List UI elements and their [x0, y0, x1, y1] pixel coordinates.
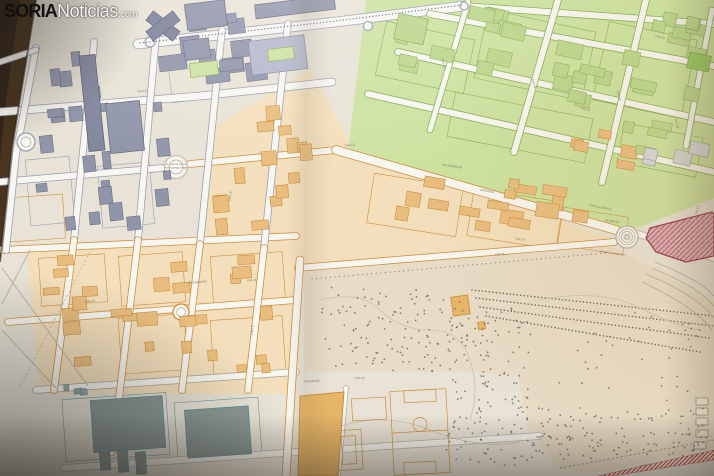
- tree-dot: [490, 405, 492, 407]
- tree-dot: [638, 341, 640, 343]
- tree-dot: [481, 432, 483, 434]
- tree-dot: [682, 415, 684, 417]
- tree-dot: [480, 354, 482, 356]
- tree-dot: [415, 320, 417, 322]
- tree-dot: [354, 347, 356, 349]
- tree-dot: [585, 361, 587, 363]
- tree-dot: [612, 344, 614, 346]
- tree-dot: [697, 444, 699, 446]
- tree-dot: [535, 450, 537, 452]
- tree-dot: [456, 359, 458, 361]
- tree-dot: [511, 432, 513, 434]
- tree-dot: [447, 435, 449, 437]
- tree-dot: [641, 358, 643, 360]
- tree-dot: [672, 452, 674, 454]
- tree-dot: [514, 464, 516, 466]
- tree-dot: [579, 407, 581, 409]
- building-footprint: [74, 356, 91, 366]
- tree-dot: [387, 344, 389, 346]
- street-label: CALLE: [355, 376, 365, 381]
- tree-dot: [487, 448, 489, 450]
- tree-dot: [593, 416, 595, 418]
- tree-dot: [600, 417, 602, 419]
- tree-dot: [653, 433, 655, 435]
- building-footprint: [163, 170, 171, 179]
- tree-dot: [418, 368, 420, 370]
- tree-dot: [616, 453, 618, 455]
- tree-dot: [520, 428, 522, 430]
- tree-dot: [391, 348, 393, 350]
- tree-dot: [705, 437, 707, 439]
- building-footprint: [98, 186, 113, 204]
- building-footprint: [145, 342, 154, 352]
- tree-dot: [630, 449, 632, 451]
- tree-dot: [364, 305, 366, 307]
- tree-dot: [649, 450, 651, 452]
- tree-dot: [434, 357, 436, 359]
- tree-dot: [650, 432, 652, 434]
- building-footprint: [451, 295, 470, 316]
- tree-dot: [648, 418, 650, 420]
- tree-dot: [338, 294, 340, 296]
- tree-dot: [338, 309, 340, 311]
- building-footprint: [173, 282, 191, 293]
- tree-dot: [691, 450, 693, 452]
- tree-dot: [426, 295, 428, 297]
- tree-dot: [449, 350, 451, 352]
- tree-dot: [596, 367, 598, 369]
- tree-dot: [559, 414, 561, 416]
- tree-dot: [682, 433, 684, 435]
- tree-dot: [668, 409, 670, 411]
- tree-dot: [611, 416, 613, 418]
- building-footprint: [696, 418, 708, 425]
- tree-dot: [666, 399, 668, 401]
- roundabout: [17, 133, 35, 151]
- tree-dot: [623, 436, 625, 438]
- tree-dot: [401, 346, 403, 348]
- tree-dot: [329, 348, 331, 350]
- tree-dot: [521, 322, 523, 324]
- building-footprint: [156, 138, 170, 157]
- tree-dot: [549, 418, 551, 420]
- tree-dot: [584, 435, 586, 437]
- tree-dot: [482, 375, 484, 377]
- tree-dot: [653, 443, 655, 445]
- tree-dot: [461, 337, 463, 339]
- tree-dot: [661, 415, 663, 417]
- tree-dot: [457, 398, 459, 400]
- tree-dot: [392, 370, 394, 372]
- tree-dot: [355, 362, 357, 364]
- tree-dot: [488, 355, 490, 357]
- tree-dot: [597, 445, 599, 447]
- building-footprint: [237, 364, 247, 372]
- tree-dot: [570, 425, 572, 427]
- tree-dot: [449, 321, 451, 323]
- tree-dot: [556, 438, 558, 440]
- tree-dot: [452, 379, 454, 381]
- tree-dot: [538, 407, 540, 409]
- tree-dot: [461, 341, 463, 343]
- tree-dot: [483, 359, 485, 361]
- building-footprint: [43, 287, 59, 295]
- tree-dot: [392, 314, 394, 316]
- solid-orange-block: [298, 392, 344, 476]
- tree-dot: [402, 361, 404, 363]
- building-footprint: [552, 62, 570, 78]
- tree-dot: [449, 368, 451, 370]
- tree-dot: [449, 441, 451, 443]
- tree-dot: [629, 337, 631, 339]
- tree-dot: [587, 341, 589, 343]
- tree-dot: [335, 365, 337, 367]
- tree-dot: [566, 437, 568, 439]
- tree-dot: [485, 453, 487, 455]
- tree-dot: [478, 461, 480, 463]
- tree-dot: [651, 316, 653, 318]
- tree-dot: [514, 396, 516, 398]
- tree-dot: [634, 312, 636, 314]
- building-footprint: [111, 308, 132, 316]
- tree-dot: [494, 461, 496, 463]
- tree-dot: [558, 443, 560, 445]
- tree-dot: [465, 441, 467, 443]
- building-footprint: [573, 140, 588, 152]
- tree-dot: [680, 422, 682, 424]
- tree-dot: [400, 352, 402, 354]
- tree-dot: [431, 362, 433, 364]
- building-footprint: [185, 0, 228, 30]
- tree-dot: [518, 407, 520, 409]
- tree-dot: [451, 329, 453, 331]
- tree-dot: [627, 411, 629, 413]
- tree-dot: [437, 343, 439, 345]
- tree-dot: [643, 449, 645, 451]
- building-footprint: [153, 102, 162, 112]
- building-footprint: [251, 220, 268, 231]
- tree-dot: [595, 415, 597, 417]
- tree-dot: [577, 350, 579, 352]
- tree-dot: [668, 432, 670, 434]
- tree-dot: [357, 297, 359, 299]
- tree-dot: [416, 296, 418, 298]
- building-footprint: [153, 277, 169, 292]
- tree-dot: [705, 457, 707, 459]
- tree-dot: [378, 303, 380, 305]
- tree-dot: [684, 447, 686, 449]
- tree-dot: [669, 330, 671, 332]
- tree-dot: [501, 449, 503, 451]
- tree-dot: [651, 417, 653, 419]
- tree-dot: [462, 310, 464, 312]
- building-footprint: [109, 202, 124, 221]
- building-footprint: [183, 38, 211, 61]
- tree-dot: [676, 386, 678, 388]
- tree-dot: [450, 317, 452, 319]
- tree-dot: [378, 301, 380, 303]
- tree-dot: [331, 287, 333, 289]
- tree-dot: [698, 431, 700, 433]
- tree-dot: [378, 317, 380, 319]
- tree-dot: [518, 400, 520, 402]
- tree-dot: [526, 321, 528, 323]
- building-footprint: [89, 212, 101, 225]
- tree-dot: [330, 313, 332, 315]
- map-photo: VALLADOLIDAVENIDACALLECALLECALLECALLECAL…: [0, 0, 714, 476]
- tree-dot: [516, 382, 518, 384]
- tree-dot: [676, 376, 678, 378]
- tree-dot: [656, 444, 658, 446]
- tree-dot: [456, 448, 458, 450]
- tree-dot: [634, 418, 636, 420]
- tree-dot: [557, 425, 559, 427]
- tree-dot: [453, 338, 455, 340]
- tree-dot: [426, 335, 428, 337]
- tree-dot: [346, 310, 348, 312]
- building-footprint: [395, 206, 410, 221]
- street-label: PALACIOS: [304, 379, 320, 384]
- tree-dot: [530, 334, 532, 336]
- tree-dot: [541, 422, 543, 424]
- building-footprint: [82, 286, 98, 297]
- tree-dot: [458, 428, 460, 430]
- tree-dot: [615, 433, 617, 435]
- tree-dot: [673, 446, 675, 448]
- tree-dot: [480, 375, 482, 377]
- tree-dot: [497, 434, 499, 436]
- building-footprint: [36, 183, 48, 192]
- tree-dot: [459, 301, 461, 303]
- tree-dot: [439, 365, 441, 367]
- building-footprint: [300, 144, 313, 161]
- tree-dot: [499, 375, 501, 377]
- tree-dot: [490, 458, 492, 460]
- tree-dot: [626, 442, 628, 444]
- tree-dot: [511, 309, 513, 311]
- tree-dot: [543, 433, 545, 435]
- building-footprint: [478, 322, 486, 330]
- tree-dot: [486, 355, 488, 357]
- tree-dot: [521, 455, 523, 457]
- building-footprint: [685, 16, 700, 31]
- tree-dot: [668, 357, 670, 359]
- tree-dot: [647, 443, 649, 445]
- building-footprint: [126, 216, 141, 231]
- tree-dot: [518, 375, 520, 377]
- tree-dot: [690, 328, 692, 330]
- tree-dot: [390, 339, 392, 341]
- tree-dot: [675, 432, 677, 434]
- tree-dot: [476, 412, 478, 414]
- tree-dot: [583, 455, 585, 457]
- tree-dot: [702, 453, 704, 455]
- tree-dot: [472, 432, 474, 434]
- tree-dot: [459, 416, 461, 418]
- tree-dot: [565, 425, 567, 427]
- tree-dot: [700, 436, 702, 438]
- tree-dot: [482, 383, 484, 385]
- tree-dot: [532, 445, 534, 447]
- tree-dot: [567, 454, 569, 456]
- tree-dot: [461, 325, 463, 327]
- tree-dot: [661, 377, 663, 379]
- tree-dot: [367, 342, 369, 344]
- tree-dot: [498, 419, 500, 421]
- tree-dot: [591, 439, 593, 441]
- tree-dot: [407, 321, 409, 323]
- tree-dot: [389, 321, 391, 323]
- tree-dot: [539, 450, 541, 452]
- tree-dot: [673, 442, 675, 444]
- tree-dot: [502, 428, 504, 430]
- tree-dot: [522, 411, 524, 413]
- tree-dot: [460, 446, 462, 448]
- tree-dot: [454, 361, 456, 363]
- building-footprint: [696, 408, 708, 415]
- tree-dot: [459, 323, 461, 325]
- tree-dot: [569, 437, 571, 439]
- tree-dot: [505, 399, 507, 401]
- tree-dot: [466, 359, 468, 361]
- tree-dot: [487, 351, 489, 353]
- street-label: GLORIETA DE LA: [166, 163, 187, 166]
- tree-dot: [447, 349, 449, 351]
- tree-dot: [411, 298, 413, 300]
- tree-dot: [356, 346, 358, 348]
- tree-dot: [569, 439, 571, 441]
- tree-dot: [586, 432, 588, 434]
- tree-dot: [429, 299, 431, 301]
- building-footprint: [266, 105, 281, 120]
- tree-dot: [579, 420, 581, 422]
- tree-dot: [665, 413, 667, 415]
- tree-dot: [513, 382, 515, 384]
- tree-dot: [702, 425, 704, 427]
- tree-dot: [456, 326, 458, 328]
- tree-dot: [384, 328, 386, 330]
- tree-dot: [381, 362, 383, 364]
- tree-dot: [376, 352, 378, 354]
- street-label: CALLE: [247, 278, 257, 283]
- tree-dot: [465, 345, 467, 347]
- building-footprint: [262, 363, 271, 373]
- tree-dot: [686, 433, 688, 435]
- tree-dot: [321, 308, 323, 310]
- building-footprint: [64, 384, 69, 390]
- tree-dot: [514, 424, 516, 426]
- tree-dot: [520, 406, 522, 408]
- tree-dot: [350, 343, 352, 345]
- tree-dot: [374, 357, 376, 359]
- tree-dot: [431, 370, 433, 372]
- tree-dot: [466, 417, 468, 419]
- tree-dot: [483, 371, 485, 373]
- building-footprint: [643, 147, 658, 161]
- tree-dot: [572, 437, 574, 439]
- tree-dot: [537, 436, 539, 438]
- tree-dot: [495, 330, 497, 332]
- building-footprint: [207, 350, 217, 361]
- building-footprint: [288, 172, 300, 183]
- tree-dot: [469, 459, 471, 461]
- tree-dot: [589, 445, 591, 447]
- tree-dot: [564, 424, 566, 426]
- tree-dot: [429, 342, 431, 344]
- tree-dot: [492, 389, 494, 391]
- tree-dot: [697, 441, 699, 443]
- tree-dot: [349, 306, 351, 308]
- tree-dot: [608, 387, 610, 389]
- tree-dot: [526, 406, 528, 408]
- tree-dot: [396, 351, 398, 353]
- building-footprint: [57, 255, 73, 266]
- building-footprint: [261, 150, 277, 165]
- logo-com: .com: [118, 9, 138, 19]
- tree-dot: [466, 339, 468, 341]
- building-footprint: [184, 406, 251, 458]
- tree-dot: [690, 410, 692, 412]
- tree-dot: [510, 307, 512, 309]
- tree-dot: [423, 310, 425, 312]
- tree-dot: [477, 316, 479, 318]
- tree-dot: [511, 399, 513, 401]
- tree-dot: [570, 416, 572, 418]
- tree-dot: [454, 420, 456, 422]
- tree-dot: [483, 452, 485, 454]
- building-footprint: [135, 452, 147, 475]
- tree-dot: [468, 318, 470, 320]
- building-footprint: [83, 155, 97, 172]
- tree-dot: [517, 327, 519, 329]
- tree-dot: [446, 449, 448, 451]
- tree-dot: [688, 428, 690, 430]
- tree-dot: [518, 332, 520, 334]
- tree-dot: [372, 359, 374, 361]
- building-footprint: [683, 86, 701, 103]
- roundabout: [364, 22, 373, 31]
- building-footprint: [102, 151, 111, 169]
- tree-dot: [646, 453, 648, 455]
- street-label: CALLE: [85, 299, 95, 304]
- tree-dot: [355, 328, 357, 330]
- tree-dot: [423, 368, 425, 370]
- tree-dot: [415, 289, 417, 291]
- tree-dot: [447, 334, 449, 336]
- tree-dot: [367, 325, 369, 327]
- tree-dot: [400, 307, 402, 309]
- tree-dot: [423, 313, 425, 315]
- tree-dot: [340, 345, 342, 347]
- building-footprint: [694, 442, 706, 449]
- tree-dot: [406, 348, 408, 350]
- tree-dot: [696, 335, 698, 337]
- building-footprint: [260, 306, 273, 321]
- tree-dot: [507, 375, 509, 377]
- tree-dot: [418, 330, 420, 332]
- building-footprint: [535, 201, 560, 219]
- tree-dot: [360, 337, 362, 339]
- tree-dot: [613, 450, 615, 452]
- tree-dot: [626, 451, 628, 453]
- tree-dot: [682, 323, 684, 325]
- tree-dot: [372, 363, 374, 365]
- tree-dot: [573, 419, 575, 421]
- tree-dot: [503, 373, 505, 375]
- tree-dot: [600, 444, 602, 446]
- tree-dot: [699, 329, 701, 331]
- tree-dot: [504, 464, 506, 466]
